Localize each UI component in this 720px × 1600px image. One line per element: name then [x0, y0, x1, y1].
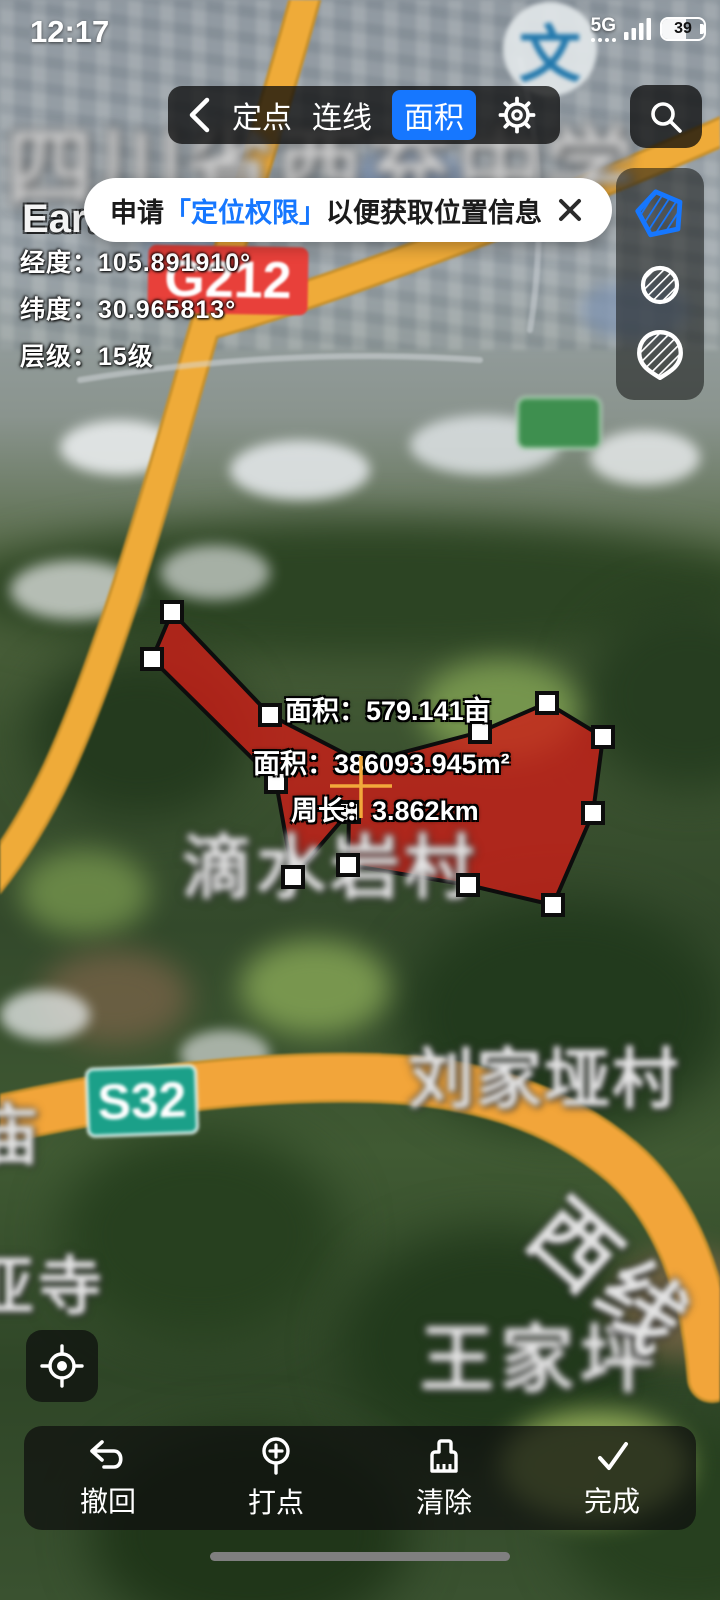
add-point-label: 打点 [248, 1481, 304, 1521]
brush-icon [422, 1435, 466, 1477]
battery-percent: 39 [674, 20, 692, 38]
signal-bars-icon [624, 17, 652, 41]
my-location-button[interactable] [26, 1330, 98, 1402]
zoom-level-value: 15级 [98, 343, 154, 371]
search-icon [647, 98, 685, 136]
home-indicator[interactable] [210, 1552, 510, 1561]
nav-toolbar: 定点 连线 面积 [168, 86, 560, 144]
undo-label: 撤回 [80, 1480, 136, 1520]
tab-fix-point[interactable]: 定点 [232, 93, 292, 137]
latitude-value: 30.965813° [98, 296, 236, 324]
battery-icon: 39 [660, 17, 706, 41]
pin-plus-icon [254, 1435, 298, 1477]
latitude-row: 纬度：30.965813° [20, 290, 251, 326]
banner-text-suffix: 以便获取位置信息 [326, 198, 542, 228]
shape-tool-panel [616, 168, 704, 400]
done-label: 完成 [584, 1480, 640, 1520]
tab-area[interactable]: 面积 [392, 90, 476, 140]
clear-button[interactable]: 清除 [360, 1435, 528, 1521]
network-type: 5G [591, 16, 616, 42]
permission-banner: 申请「定位权限」以便获取位置信息 [84, 178, 612, 242]
undo-button[interactable]: 撤回 [24, 1436, 192, 1520]
sim2-signal-dots [591, 38, 616, 42]
back-icon[interactable] [186, 95, 212, 135]
circle-tool-icon[interactable] [634, 259, 686, 311]
app-screen: G212 S32 四川省西充中学 文 滴水岩村 刘家垭村 王家坪 亚寺 庙 西线 [0, 0, 720, 1600]
polygon-tool-icon[interactable] [632, 186, 688, 242]
banner-close-button[interactable] [548, 188, 592, 232]
done-button[interactable]: 完成 [528, 1436, 696, 1520]
clock: 12:17 [30, 14, 109, 50]
close-icon [557, 197, 583, 223]
longitude-row: 经度：105.891910° [20, 243, 251, 279]
shield-tool-icon[interactable] [633, 328, 687, 382]
banner-highlight: 「定位权限」 [164, 198, 326, 228]
status-bar: 12:17 5G 39 [0, 0, 720, 60]
add-point-button[interactable]: 打点 [192, 1435, 360, 1521]
clear-label: 清除 [416, 1481, 472, 1521]
locate-target-icon [39, 1343, 85, 1389]
undo-icon [86, 1436, 130, 1476]
search-button[interactable] [630, 85, 702, 148]
bottom-action-bar: 撤回 打点 清除 完成 [24, 1426, 696, 1530]
settings-gear-icon[interactable] [496, 94, 538, 136]
check-icon [590, 1436, 634, 1476]
longitude-value: 105.891910° [98, 249, 251, 277]
coordinate-info: 经度：105.891910° 纬度：30.965813° 层级：15级 [20, 243, 251, 384]
tab-connect-line[interactable]: 连线 [312, 93, 372, 137]
zoom-level-row: 层级：15级 [20, 337, 251, 373]
banner-text-prefix: 申请 [110, 198, 164, 228]
